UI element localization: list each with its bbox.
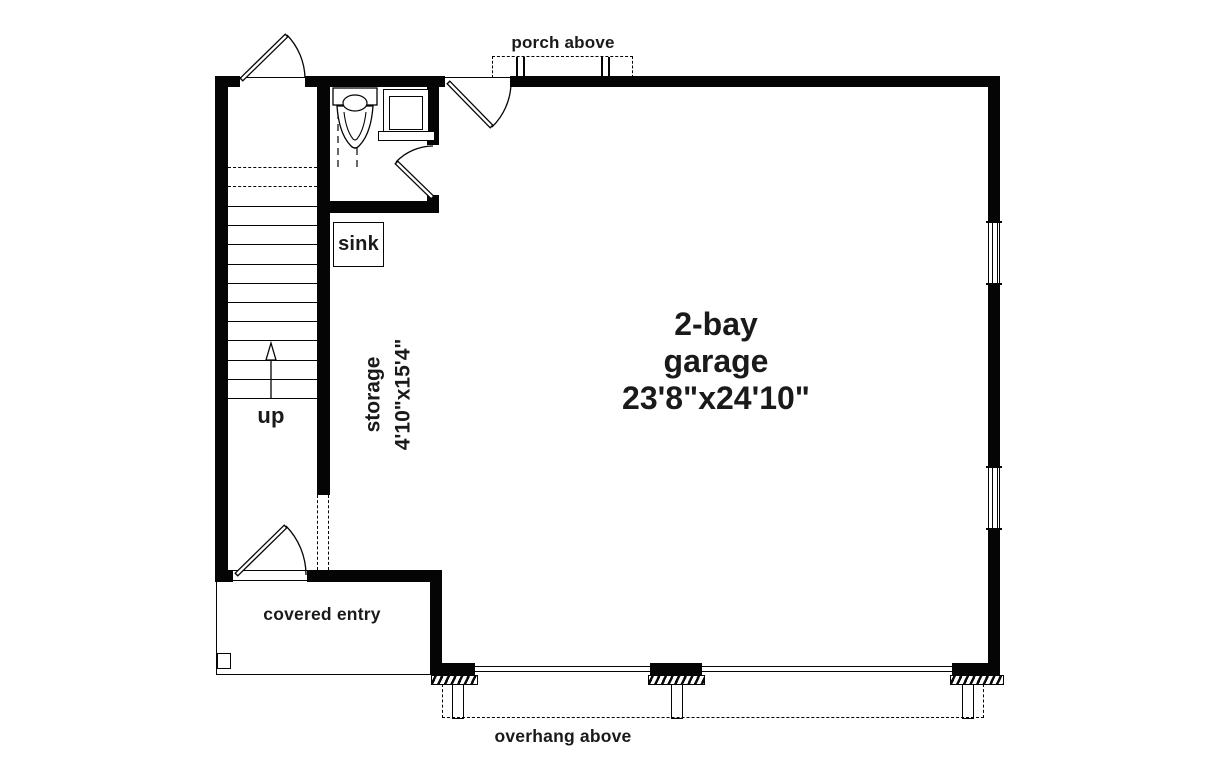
- stairs-exterior-door: [241, 35, 305, 80]
- storage-label-wrap: storage 4'10"x15'4": [320, 326, 458, 462]
- stairs-up-arrow: [266, 343, 276, 398]
- sink-label-box: sink: [333, 222, 384, 267]
- covered-entry-label: covered entry: [262, 604, 382, 626]
- garage-name-line1: 2-bay: [565, 306, 867, 343]
- storage-label: storage 4'10"x15'4": [359, 338, 420, 450]
- porch-entry-door: [448, 82, 511, 127]
- sink-label: sink: [338, 233, 379, 256]
- entry-door: [236, 526, 306, 575]
- garage-dims: 23'8"x24'10": [565, 380, 867, 417]
- floor-plan: porch above sink up storage 4'10"x15'4" …: [0, 0, 1215, 783]
- overhang-above-label: overhang above: [483, 726, 643, 747]
- up-label: up: [246, 403, 296, 429]
- garage-name-line2: garage: [565, 343, 867, 380]
- storage-dims: 4'10"x15'4": [389, 338, 419, 450]
- garage-label: 2-bay garage 23'8"x24'10": [565, 306, 867, 417]
- storage-name: storage: [359, 338, 389, 450]
- porch-above-label: porch above: [488, 33, 638, 53]
- toilet: [333, 88, 377, 172]
- bathroom-door: [396, 146, 433, 198]
